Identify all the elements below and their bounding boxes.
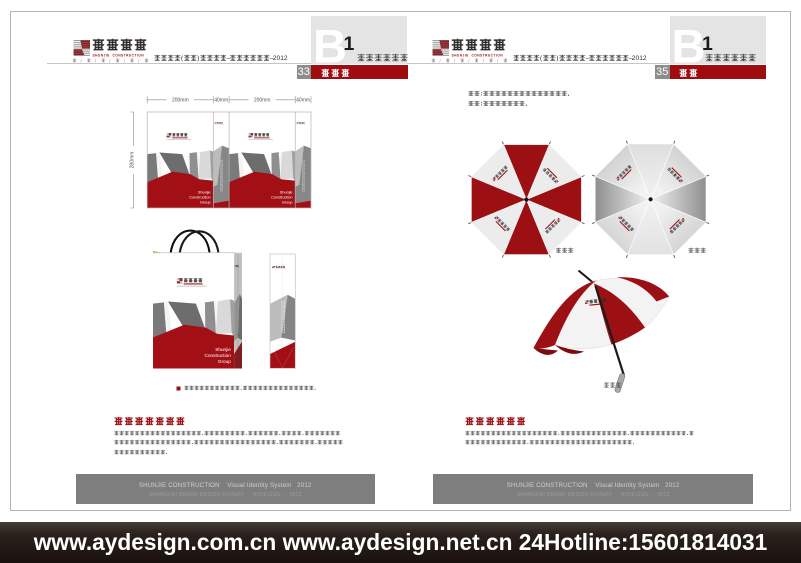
svg-text:200mm: 200mm — [172, 98, 189, 104]
svg-text:B: B — [313, 20, 347, 73]
svg-text:280mm: 280mm — [130, 152, 136, 169]
svg-text:40mm: 40mm — [296, 98, 310, 104]
svg-text:40mm: 40mm — [214, 98, 228, 104]
svg-text:B: B — [672, 20, 706, 73]
svg-text:200mm: 200mm — [254, 98, 271, 104]
svg-text:1: 1 — [344, 33, 355, 55]
